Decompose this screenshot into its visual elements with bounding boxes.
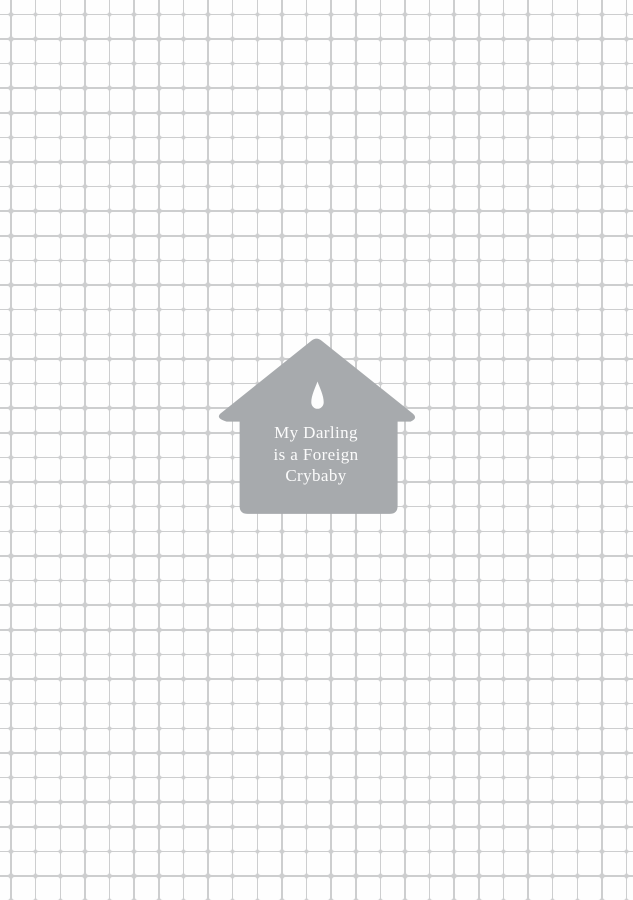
grid-tile — [430, 680, 453, 703]
grid-tile — [233, 114, 256, 137]
grid-tile — [258, 581, 281, 604]
grid-tile — [332, 778, 355, 801]
grid-tile — [233, 828, 256, 851]
grid-tile — [578, 187, 601, 210]
grid-tile — [307, 138, 330, 161]
grid-tile — [184, 335, 207, 358]
grid-tile — [12, 360, 35, 383]
grid-tile — [209, 581, 232, 604]
grid-tile — [86, 138, 109, 161]
grid-tile — [110, 0, 133, 14]
grid-tile — [455, 114, 478, 137]
grid-tile — [258, 89, 281, 112]
grid-tile — [603, 704, 626, 727]
grid-tile — [258, 138, 281, 161]
grid-tile — [36, 310, 59, 333]
grid-tile — [258, 606, 281, 629]
grid-tile — [529, 187, 552, 210]
grid-tile — [86, 237, 109, 260]
grid-tile — [258, 729, 281, 752]
grid-tile — [480, 237, 503, 260]
grid-tile — [553, 286, 576, 309]
grid-tile — [553, 237, 576, 260]
grid-tile — [455, 187, 478, 210]
grid-tile — [627, 877, 633, 900]
grid-tile — [0, 581, 10, 604]
grid-tile — [110, 680, 133, 703]
grid-tile — [233, 532, 256, 555]
grid-tile — [627, 507, 633, 530]
grid-tile — [0, 237, 10, 260]
grid-tile — [307, 237, 330, 260]
grid-tile — [553, 384, 576, 407]
grid-tile — [627, 704, 633, 727]
grid-tile — [332, 828, 355, 851]
grid-tile — [504, 754, 527, 777]
grid-tile — [504, 434, 527, 457]
grid-tile — [627, 360, 633, 383]
grid-tile — [86, 163, 109, 186]
grid-tile — [357, 384, 380, 407]
grid-tile — [110, 40, 133, 63]
grid-tile — [209, 40, 232, 63]
grid-tile — [61, 507, 84, 530]
grid-tile — [430, 704, 453, 727]
grid-tile — [430, 15, 453, 38]
grid-tile — [258, 212, 281, 235]
grid-tile — [86, 828, 109, 851]
grid-tile — [0, 40, 10, 63]
grid-tile — [160, 434, 183, 457]
grid-tile — [381, 655, 404, 678]
grid-tile — [110, 458, 133, 481]
grid-tile — [86, 532, 109, 555]
grid-tile — [86, 114, 109, 137]
grid-tile — [553, 409, 576, 432]
grid-tile — [455, 557, 478, 580]
grid-tile — [233, 507, 256, 530]
grid-tile — [36, 852, 59, 875]
grid-tile — [12, 89, 35, 112]
grid-tile — [61, 335, 84, 358]
grid-tile — [381, 310, 404, 333]
grid-tile — [135, 89, 158, 112]
grid-tile — [0, 631, 10, 654]
grid-tile — [184, 680, 207, 703]
grid-tile — [357, 114, 380, 137]
grid-tile — [135, 0, 158, 14]
grid-tile — [578, 237, 601, 260]
grid-tile — [455, 483, 478, 506]
grid-tile — [455, 631, 478, 654]
grid-tile — [578, 778, 601, 801]
grid-tile — [233, 335, 256, 358]
grid-tile — [480, 680, 503, 703]
grid-tile — [258, 40, 281, 63]
grid-tile — [0, 335, 10, 358]
grid-tile — [86, 483, 109, 506]
grid-tile — [381, 15, 404, 38]
grid-tile — [529, 631, 552, 654]
grid-tile — [12, 409, 35, 432]
grid-tile — [283, 360, 306, 383]
grid-tile — [553, 828, 576, 851]
grid-tile — [36, 557, 59, 580]
grid-tile — [406, 606, 429, 629]
grid-tile — [61, 852, 84, 875]
grid-tile — [0, 828, 10, 851]
grid-tile — [12, 40, 35, 63]
grid-tile — [258, 803, 281, 826]
grid-tile — [86, 655, 109, 678]
grid-tile — [553, 680, 576, 703]
grid-tile — [209, 335, 232, 358]
grid-tile — [184, 606, 207, 629]
grid-tile — [36, 409, 59, 432]
grid-tile — [381, 557, 404, 580]
grid-tile — [160, 187, 183, 210]
grid-tile — [283, 212, 306, 235]
grid-tile — [110, 163, 133, 186]
grid-tile — [135, 828, 158, 851]
grid-tile — [357, 828, 380, 851]
grid-tile — [406, 754, 429, 777]
grid-tile — [332, 237, 355, 260]
grid-tile — [480, 212, 503, 235]
grid-tile — [406, 828, 429, 851]
grid-tile — [603, 15, 626, 38]
grid-tile — [603, 828, 626, 851]
grid-tile — [0, 114, 10, 137]
grid-tile — [307, 89, 330, 112]
grid-tile — [233, 852, 256, 875]
grid-tile — [332, 261, 355, 284]
grid-tile — [381, 163, 404, 186]
grid-tile — [135, 409, 158, 432]
grid-tile — [406, 680, 429, 703]
grid-tile — [455, 237, 478, 260]
grid-tile — [233, 778, 256, 801]
grid-tile — [184, 655, 207, 678]
grid-tile — [184, 877, 207, 900]
grid-tile — [504, 360, 527, 383]
grid-tile — [553, 729, 576, 752]
grid-tile — [307, 754, 330, 777]
grid-tile — [430, 803, 453, 826]
grid-tile — [258, 631, 281, 654]
grid-tile — [480, 458, 503, 481]
grid-tile — [61, 187, 84, 210]
grid-tile — [480, 581, 503, 604]
grid-tile — [86, 286, 109, 309]
grid-tile — [504, 507, 527, 530]
grid-tile — [480, 532, 503, 555]
grid-tile — [357, 360, 380, 383]
grid-tile — [209, 778, 232, 801]
grid-tile — [603, 187, 626, 210]
grid-tile — [406, 877, 429, 900]
grid-tile — [12, 212, 35, 235]
grid-tile — [430, 581, 453, 604]
grid-tile — [480, 877, 503, 900]
grid-tile — [184, 261, 207, 284]
grid-tile — [357, 507, 380, 530]
grid-tile — [332, 557, 355, 580]
grid-tile — [258, 778, 281, 801]
grid-tile — [603, 483, 626, 506]
grid-tile — [0, 360, 10, 383]
grid-tile — [357, 237, 380, 260]
grid-tile — [357, 335, 380, 358]
grid-tile — [332, 163, 355, 186]
grid-tile — [357, 606, 380, 629]
grid-tile — [258, 852, 281, 875]
grid-tile — [529, 729, 552, 752]
grid-tile — [480, 138, 503, 161]
grid-tile — [209, 631, 232, 654]
grid-tile — [578, 803, 601, 826]
grid-tile — [381, 89, 404, 112]
grid-tile — [86, 310, 109, 333]
grid-tile — [233, 729, 256, 752]
grid-tile — [160, 877, 183, 900]
grid-tile — [504, 458, 527, 481]
grid-tile — [233, 163, 256, 186]
grid-tile — [307, 704, 330, 727]
grid-tile — [529, 384, 552, 407]
grid-tile — [430, 0, 453, 14]
grid-tile — [578, 655, 601, 678]
grid-tile — [283, 803, 306, 826]
grid-tile — [553, 557, 576, 580]
grid-tile — [307, 877, 330, 900]
grid-tile — [578, 877, 601, 900]
grid-tile — [603, 114, 626, 137]
grid-tile — [283, 138, 306, 161]
grid-tile — [36, 532, 59, 555]
grid-tile — [0, 532, 10, 555]
grid-tile — [110, 335, 133, 358]
grid-tile — [529, 237, 552, 260]
grid-tile — [455, 778, 478, 801]
grid-tile — [307, 15, 330, 38]
grid-tile — [603, 803, 626, 826]
grid-tile — [332, 532, 355, 555]
grid-tile — [233, 64, 256, 87]
grid-tile — [406, 335, 429, 358]
grid-tile — [455, 754, 478, 777]
grid-tile — [529, 15, 552, 38]
grid-tile — [307, 286, 330, 309]
grid-tile — [504, 852, 527, 875]
grid-tile — [504, 89, 527, 112]
grid-tile — [36, 828, 59, 851]
grid-tile — [627, 680, 633, 703]
grid-tile — [480, 828, 503, 851]
grid-tile — [455, 64, 478, 87]
grid-tile — [12, 0, 35, 14]
grid-tile — [406, 852, 429, 875]
grid-tile — [184, 507, 207, 530]
grid-tile — [480, 704, 503, 727]
grid-tile — [160, 532, 183, 555]
grid-tile — [61, 754, 84, 777]
grid-tile — [578, 89, 601, 112]
grid-tile — [61, 655, 84, 678]
grid-tile — [430, 286, 453, 309]
grid-tile — [332, 64, 355, 87]
grid-tile — [0, 507, 10, 530]
grid-tile — [233, 877, 256, 900]
grid-tile — [160, 778, 183, 801]
grid-tile — [332, 15, 355, 38]
grid-tile — [209, 138, 232, 161]
grid-tile — [258, 15, 281, 38]
grid-tile — [258, 261, 281, 284]
grid-tile — [86, 581, 109, 604]
grid-tile — [12, 803, 35, 826]
grid-tile — [61, 778, 84, 801]
grid-tile — [209, 89, 232, 112]
grid-tile — [381, 212, 404, 235]
grid-tile — [627, 237, 633, 260]
grid-tile — [430, 114, 453, 137]
grid-tile — [529, 0, 552, 14]
grid-tile — [578, 15, 601, 38]
grid-tile — [307, 261, 330, 284]
grid-tile — [283, 335, 306, 358]
grid-tile — [455, 680, 478, 703]
grid-tile — [406, 360, 429, 383]
grid-tile — [233, 15, 256, 38]
grid-tile — [184, 704, 207, 727]
grid-tile — [283, 310, 306, 333]
grid-tile — [12, 631, 35, 654]
grid-tile — [283, 507, 306, 530]
grid-tile — [455, 138, 478, 161]
grid-tile — [209, 212, 232, 235]
grid-tile — [406, 64, 429, 87]
grid-tile — [184, 114, 207, 137]
grid-tile — [578, 458, 601, 481]
grid-tile — [578, 212, 601, 235]
grid-tile — [283, 384, 306, 407]
grid-tile — [135, 507, 158, 530]
grid-tile — [553, 40, 576, 63]
grid-tile — [381, 64, 404, 87]
grid-tile — [504, 163, 527, 186]
grid-tile — [553, 532, 576, 555]
grid-tile — [480, 40, 503, 63]
grid-tile — [61, 483, 84, 506]
grid-tile — [578, 114, 601, 137]
grid-tile — [578, 40, 601, 63]
grid-tile — [160, 286, 183, 309]
grid-tile — [135, 483, 158, 506]
grid-tile — [36, 261, 59, 284]
grid-tile — [36, 507, 59, 530]
grid-tile — [0, 557, 10, 580]
grid-tile — [381, 187, 404, 210]
grid-tile — [307, 852, 330, 875]
grid-tile — [86, 631, 109, 654]
grid-tile — [135, 877, 158, 900]
grid-tile — [553, 631, 576, 654]
grid-tile — [381, 852, 404, 875]
grid-tile — [61, 64, 84, 87]
grid-tile — [61, 680, 84, 703]
grid-tile — [504, 138, 527, 161]
grid-tile — [283, 261, 306, 284]
grid-tile — [357, 89, 380, 112]
grid-tile — [480, 286, 503, 309]
grid-tile — [504, 114, 527, 137]
grid-tile — [480, 310, 503, 333]
grid-tile — [357, 655, 380, 678]
grid-tile — [0, 434, 10, 457]
grid-tile — [357, 852, 380, 875]
grid-tile — [86, 680, 109, 703]
grid-tile — [504, 877, 527, 900]
grid-tile — [627, 434, 633, 457]
grid-tile — [553, 852, 576, 875]
grid-tile — [283, 877, 306, 900]
grid-tile — [406, 729, 429, 752]
grid-tile — [627, 828, 633, 851]
grid-tile — [357, 631, 380, 654]
grid-tile — [627, 852, 633, 875]
grid-tile — [455, 434, 478, 457]
grid-tile — [406, 778, 429, 801]
grid-tile — [529, 778, 552, 801]
grid-tile — [258, 655, 281, 678]
grid-tile — [406, 581, 429, 604]
grid-tile — [0, 778, 10, 801]
grid-tile — [307, 310, 330, 333]
grid-tile — [529, 212, 552, 235]
grid-tile — [0, 138, 10, 161]
grid-tile — [553, 335, 576, 358]
grid-tile — [283, 631, 306, 654]
grid-tile — [480, 483, 503, 506]
grid-tile — [36, 778, 59, 801]
grid-tile — [135, 286, 158, 309]
grid-tile — [160, 754, 183, 777]
grid-tile — [36, 0, 59, 14]
grid-tile — [430, 557, 453, 580]
grid-tile — [357, 163, 380, 186]
grid-tile — [455, 606, 478, 629]
grid-tile — [12, 655, 35, 678]
grid-tile — [110, 877, 133, 900]
grid-tile — [627, 803, 633, 826]
grid-tile — [480, 15, 503, 38]
grid-tile — [529, 852, 552, 875]
grid-tile — [430, 434, 453, 457]
grid-tile — [61, 803, 84, 826]
grid-tile — [504, 409, 527, 432]
grid-tile — [430, 729, 453, 752]
grid-tile — [110, 655, 133, 678]
grid-tile — [135, 187, 158, 210]
grid-tile — [12, 704, 35, 727]
grid-tile — [357, 704, 380, 727]
grid-tile — [406, 237, 429, 260]
grid-tile — [283, 754, 306, 777]
grid-tile — [381, 778, 404, 801]
grid-tile — [135, 852, 158, 875]
grid-tile — [381, 384, 404, 407]
